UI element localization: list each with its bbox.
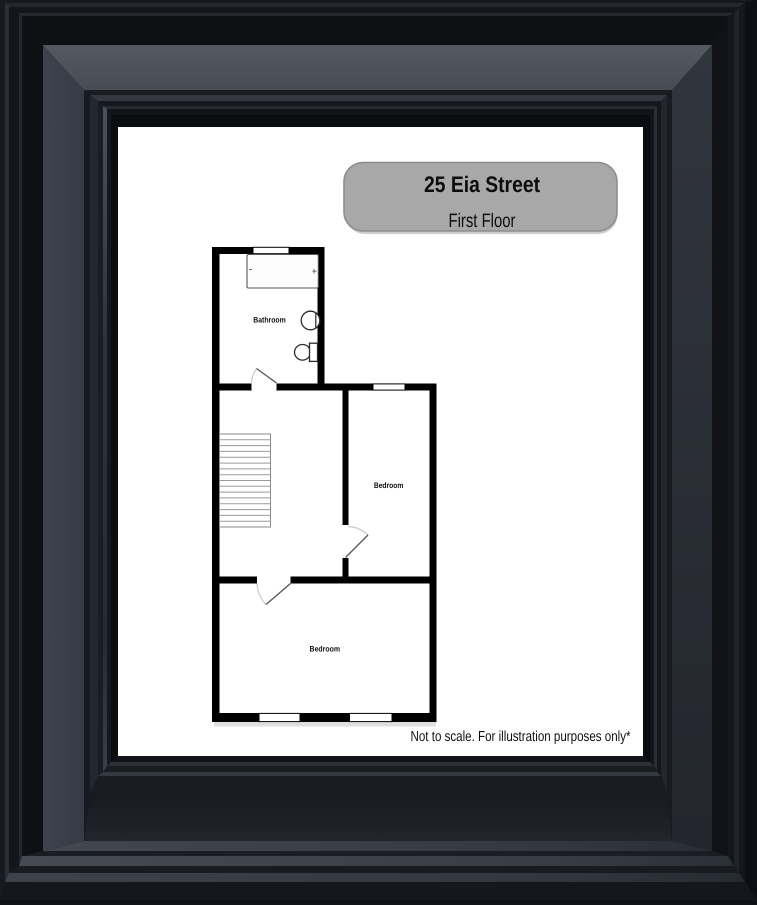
svg-text:Bathroom: Bathroom xyxy=(253,315,286,324)
svg-text:Not to scale. For illustration: Not to scale. For illustration purposes … xyxy=(411,729,631,745)
svg-text:First Floor: First Floor xyxy=(449,210,516,232)
svg-text:Bedroom: Bedroom xyxy=(310,645,341,654)
svg-text:Bedroom: Bedroom xyxy=(374,481,404,490)
svg-text:25 Eia Street: 25 Eia Street xyxy=(424,172,540,197)
